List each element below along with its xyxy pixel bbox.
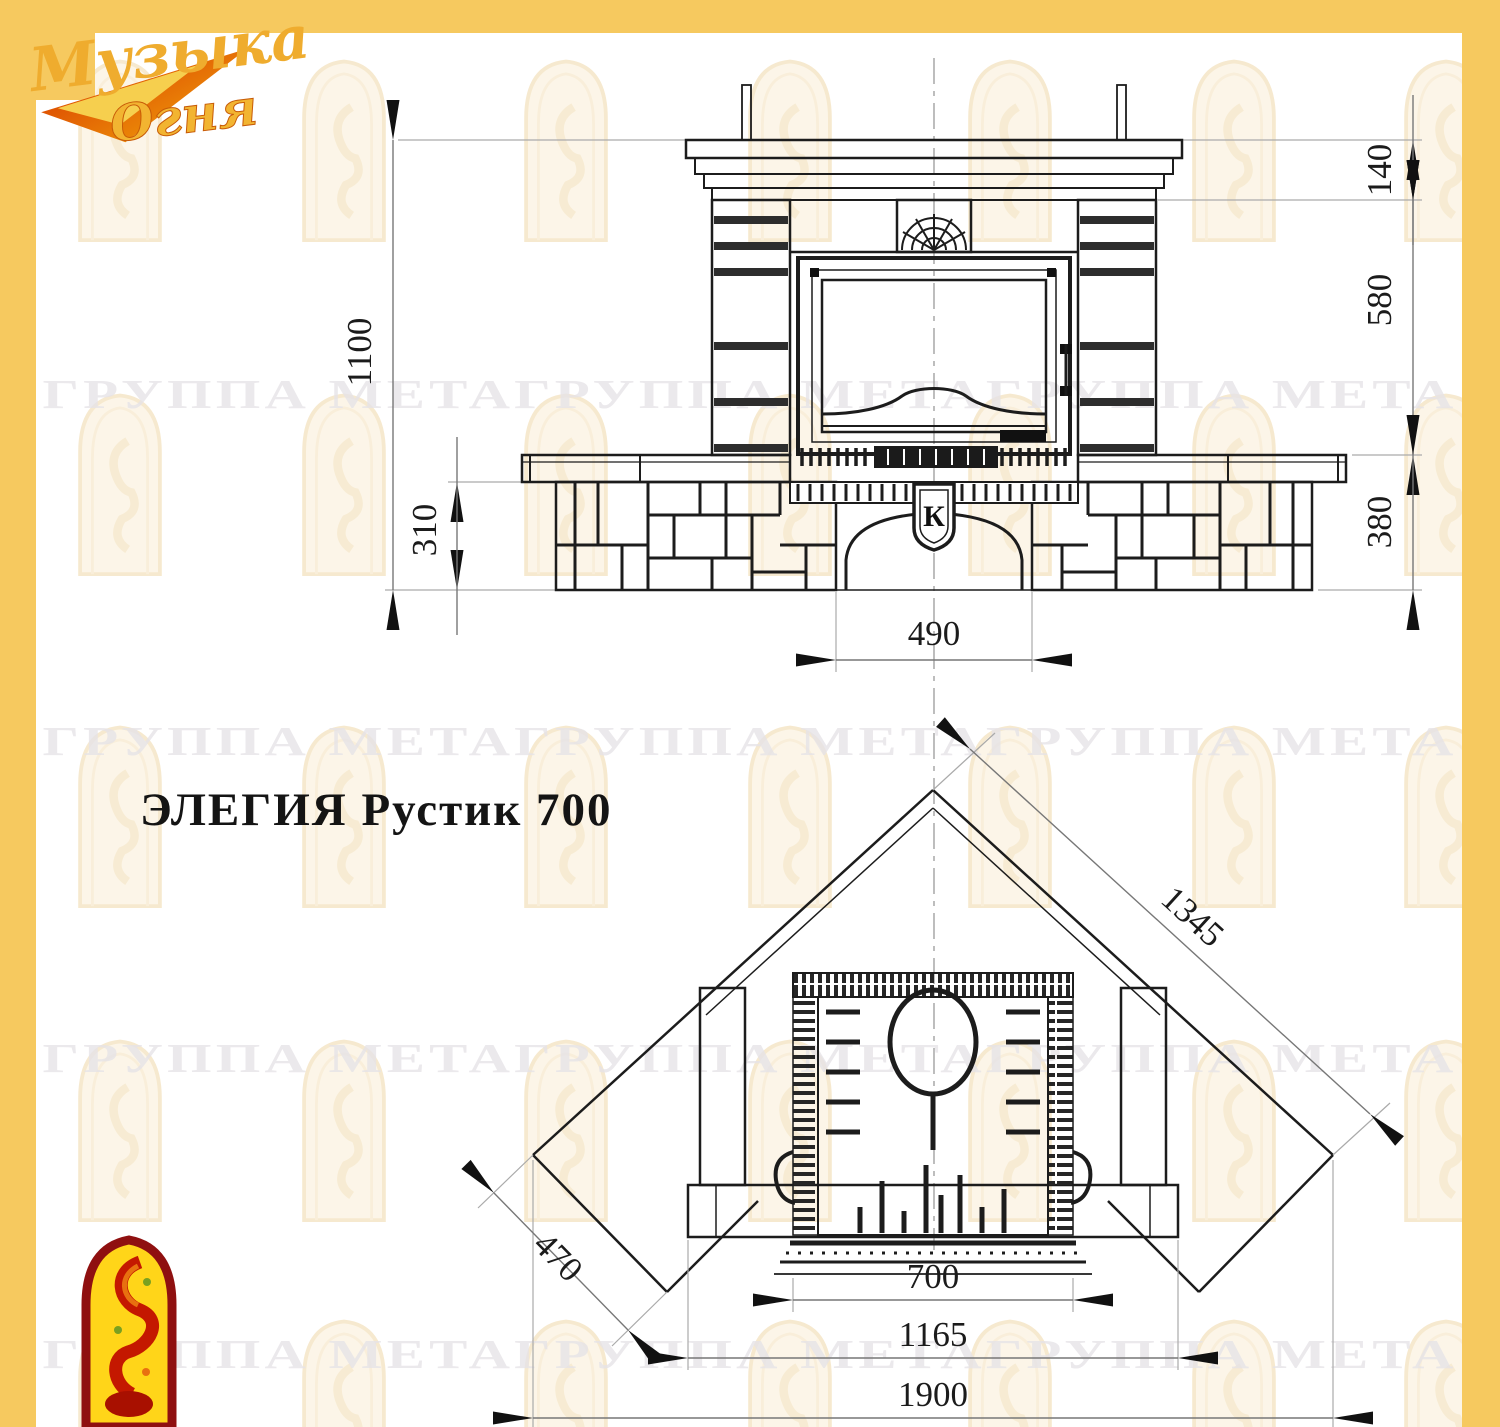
watermark-text-row: ГРУППА МЕТАГРУППА МЕТАГРУППА МЕТА bbox=[43, 371, 1458, 417]
dim-plinth-height: 380 bbox=[1360, 496, 1399, 549]
dim-crown-height: 140 bbox=[1360, 144, 1399, 197]
dim-body-height: 580 bbox=[1360, 274, 1399, 327]
dim-opening-width: 490 bbox=[908, 614, 961, 653]
frame-left bbox=[0, 0, 36, 1427]
watermark-layer: ГРУППА МЕТАГРУППА МЕТАГРУППА МЕТА ГРУППА… bbox=[43, 62, 1486, 1427]
dim-base-height: 310 bbox=[405, 504, 444, 557]
dim-total-height: 1100 bbox=[340, 318, 379, 387]
emblem-letter: К bbox=[923, 500, 945, 533]
dim-side-return: 470 bbox=[526, 1225, 591, 1290]
page-title: ЭЛЕГИЯ Рустик 700 bbox=[140, 784, 613, 836]
frame-right bbox=[1462, 0, 1500, 1427]
watermark-text-row: ГРУППА МЕТАГРУППА МЕТАГРУППА МЕТА bbox=[43, 718, 1458, 764]
dim-firebox-width: 700 bbox=[907, 1257, 960, 1296]
bottom-left-emblem bbox=[86, 1240, 172, 1427]
drawing-sheet: ГРУППА МЕТАГРУППА МЕТАГРУППА МЕТА ГРУППА… bbox=[0, 0, 1500, 1427]
watermark-text-row: ГРУППА МЕТАГРУППА МЕТАГРУППА МЕТА bbox=[43, 1331, 1458, 1377]
dim-hearth-width: 1165 bbox=[899, 1315, 968, 1354]
technical-drawing: ГРУППА МЕТАГРУППА МЕТАГРУППА МЕТА ГРУППА… bbox=[0, 0, 1500, 1427]
dim-overall-width: 1900 bbox=[898, 1375, 968, 1414]
